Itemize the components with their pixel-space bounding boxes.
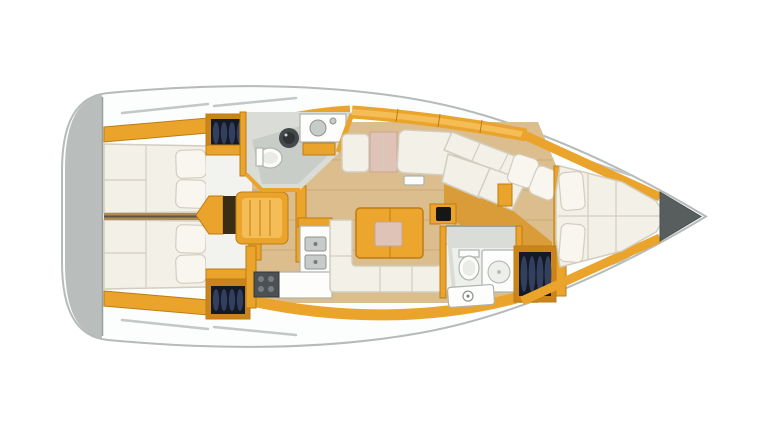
saloon-side-table: [430, 204, 456, 224]
pillow: [558, 171, 585, 211]
sink: [310, 120, 326, 136]
settee-step: [404, 176, 424, 185]
boat-floorplan-svg: [0, 0, 770, 433]
stern-swim-platform: [65, 95, 102, 338]
saloon-table: [356, 208, 423, 258]
faucet: [330, 118, 336, 124]
head-sink-unit: [447, 284, 494, 307]
stove: [254, 272, 279, 297]
pillow: [176, 149, 207, 178]
toilet-cistern: [256, 148, 263, 166]
cabin-entry-post: [498, 184, 512, 206]
vanity-drawer: [303, 143, 335, 155]
aft-cabin-divider-wall: [104, 213, 206, 220]
pillow: [176, 224, 207, 253]
yacht-floorplan-image: [0, 0, 770, 433]
galley-counter: [278, 272, 332, 298]
head-bulkhead: [440, 226, 446, 298]
pillow: [176, 254, 207, 283]
hanging-locker-aft-starboard: [206, 269, 250, 319]
table-centre-leaf: [375, 222, 402, 246]
engine-hatch-gap: [223, 196, 236, 234]
aft-cabin-port: [104, 118, 208, 213]
aft-cabin-starboard: [104, 220, 208, 315]
pillow: [176, 179, 207, 208]
pillow: [558, 223, 585, 263]
anchor-locker: [660, 192, 701, 241]
locker-shelf: [206, 269, 250, 279]
settee-bench: [342, 134, 369, 172]
head-bulkhead: [240, 112, 246, 176]
